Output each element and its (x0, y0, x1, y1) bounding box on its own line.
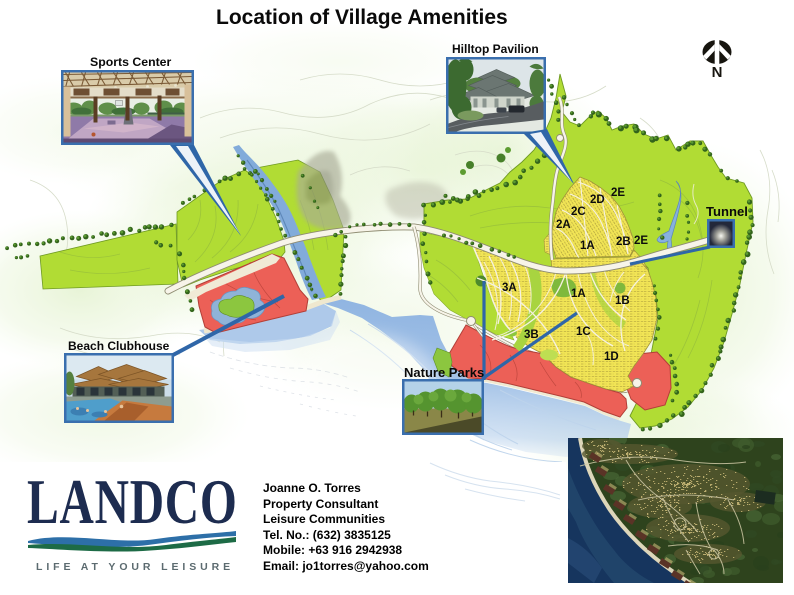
svg-text:1A: 1A (580, 240, 595, 252)
svg-text:1A: 1A (571, 288, 586, 300)
svg-text:2E: 2E (611, 187, 625, 199)
svg-text:2E: 2E (634, 235, 648, 247)
svg-text:2A: 2A (556, 219, 571, 231)
svg-text:3A: 3A (502, 282, 517, 294)
svg-text:3B: 3B (524, 329, 539, 341)
svg-text:1C: 1C (576, 326, 591, 338)
svg-text:1D: 1D (604, 351, 619, 363)
svg-text:N: N (712, 64, 723, 81)
svg-text:2B: 2B (616, 236, 631, 248)
svg-text:1B: 1B (615, 295, 630, 307)
svg-text:2C: 2C (571, 206, 586, 218)
svg-text:2D: 2D (590, 194, 605, 206)
